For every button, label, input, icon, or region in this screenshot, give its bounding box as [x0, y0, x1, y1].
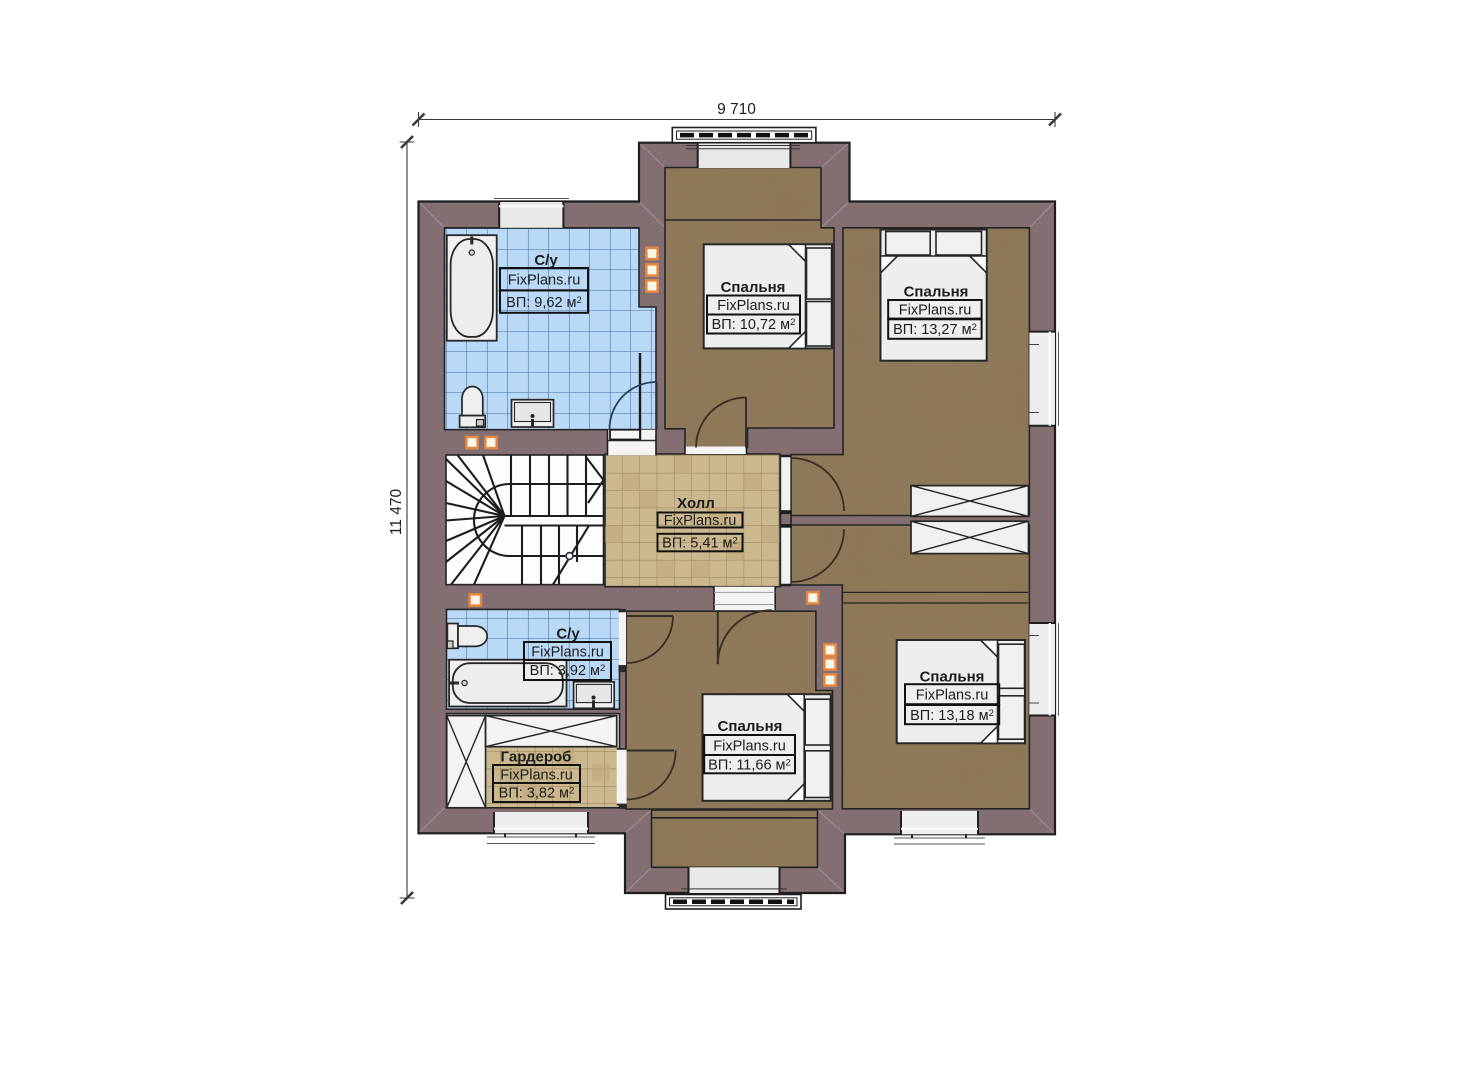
svg-text:FixPlans.ru: FixPlans.ru	[916, 688, 989, 704]
svg-text:FixPlans.ru: FixPlans.ru	[500, 768, 573, 784]
svg-text:FixPlans.ru: FixPlans.ru	[664, 513, 737, 529]
svg-text:FixPlans.ru: FixPlans.ru	[531, 645, 604, 661]
svg-text:Гардероб: Гардероб	[501, 749, 572, 766]
svg-text:ВП: 13,27 м2: ВП: 13,27 м2	[893, 322, 977, 338]
svg-text:ВП: 13,18 м2: ВП: 13,18 м2	[910, 708, 994, 724]
svg-text:ВП: 3,92 м2: ВП: 3,92 м2	[530, 663, 606, 679]
svg-text:FixPlans.ru: FixPlans.ru	[508, 273, 581, 289]
svg-text:9 710: 9 710	[717, 101, 756, 118]
svg-text:ВП: 10,72 м2: ВП: 10,72 м2	[712, 317, 796, 333]
svg-text:С/у: С/у	[534, 252, 558, 269]
svg-text:ВП: 5,41 м2: ВП: 5,41 м2	[662, 536, 738, 552]
svg-text:Спальня: Спальня	[904, 284, 969, 301]
svg-text:Спальня: Спальня	[920, 669, 985, 686]
svg-text:Спальня: Спальня	[718, 718, 783, 735]
svg-text:FixPlans.ru: FixPlans.ru	[713, 739, 786, 755]
svg-text:Холл: Холл	[677, 495, 715, 512]
svg-text:С/у: С/у	[556, 626, 580, 643]
svg-text:FixPlans.ru: FixPlans.ru	[899, 303, 972, 319]
svg-text:11 470: 11 470	[388, 488, 405, 535]
svg-text:FixPlans.ru: FixPlans.ru	[717, 298, 790, 314]
svg-text:ВП: 9,62 м2: ВП: 9,62 м2	[506, 295, 582, 311]
svg-text:Спальня: Спальня	[721, 279, 786, 296]
svg-text:ВП: 3,82 м2: ВП: 3,82 м2	[499, 786, 575, 802]
svg-text:ВП: 11,66 м2: ВП: 11,66 м2	[708, 758, 791, 774]
